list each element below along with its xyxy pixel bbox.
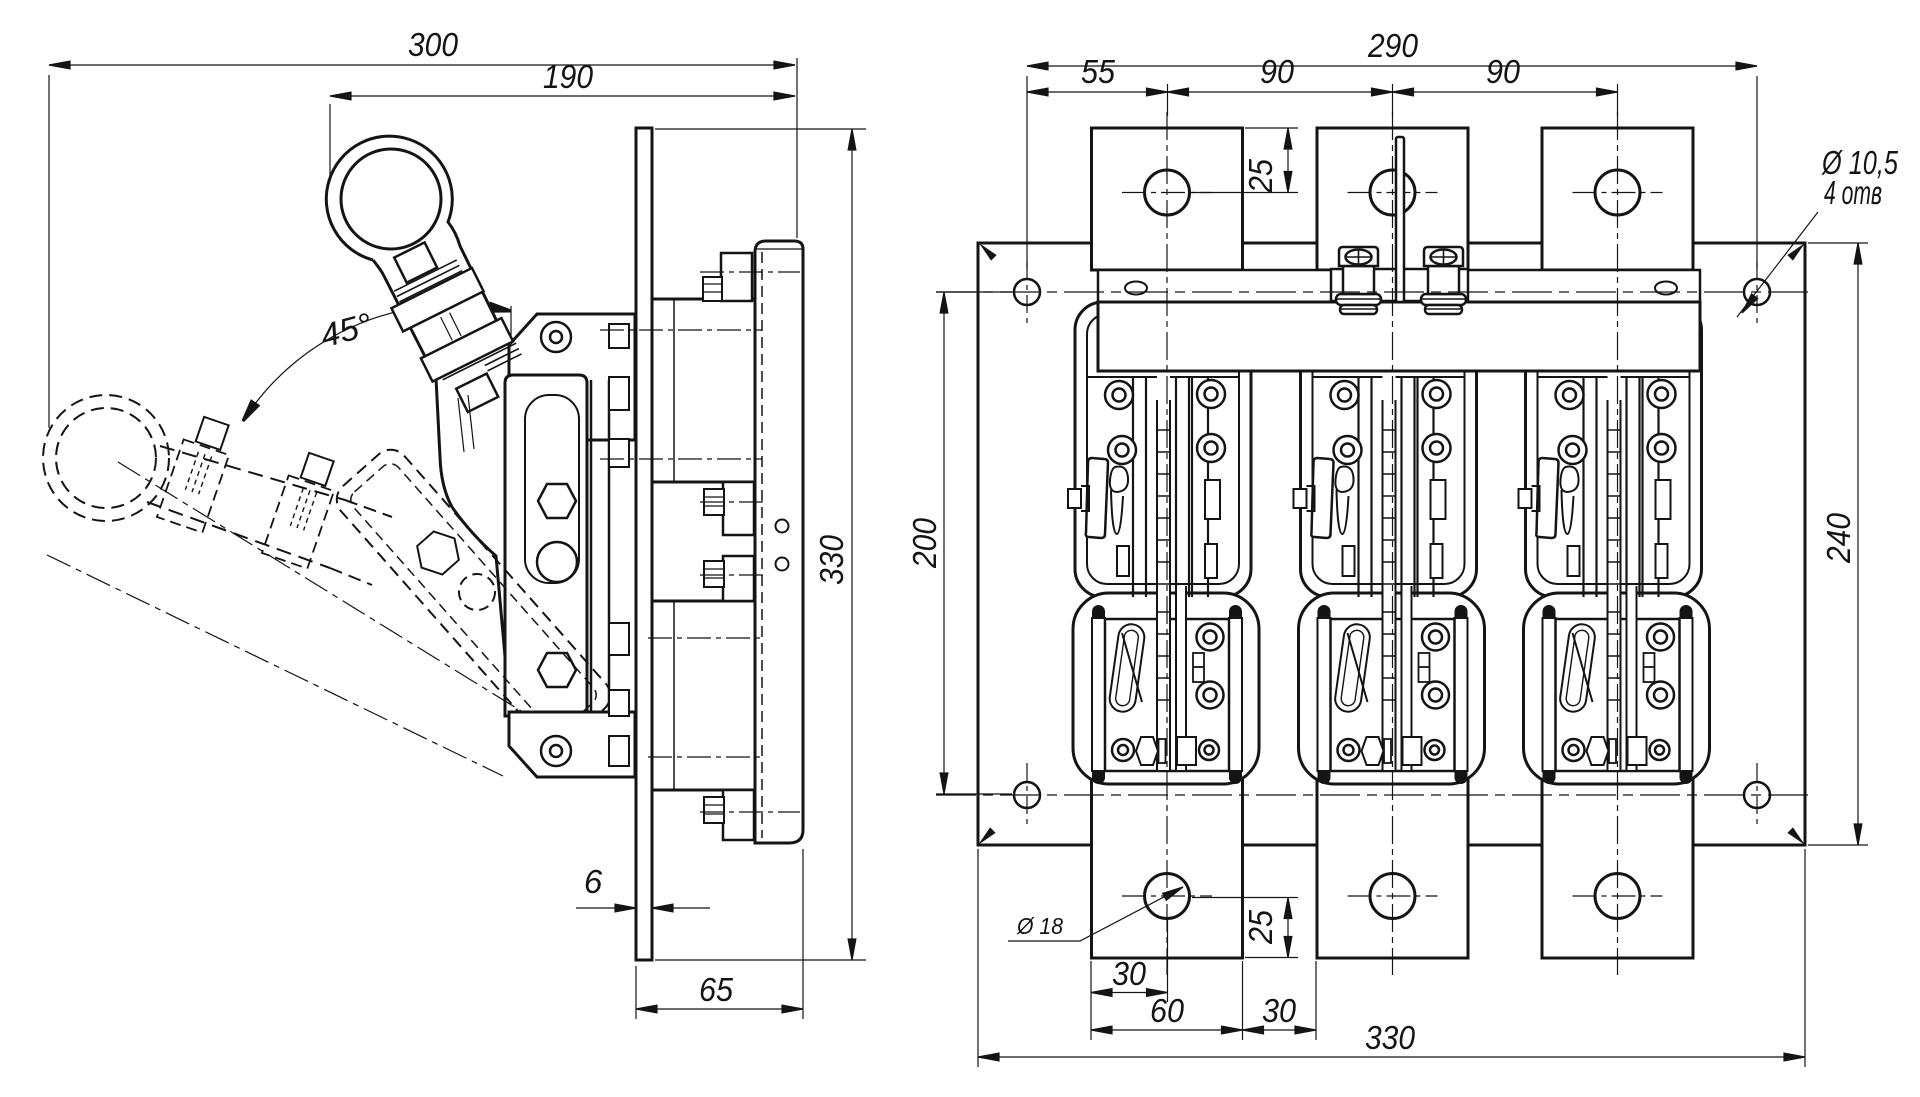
svg-text:240: 240 xyxy=(1820,512,1857,563)
svg-text:330: 330 xyxy=(1365,1019,1416,1056)
svg-text:90: 90 xyxy=(1486,53,1521,90)
svg-text:30: 30 xyxy=(1262,992,1297,1029)
svg-text:90: 90 xyxy=(1260,53,1295,90)
svg-text:65: 65 xyxy=(699,971,734,1008)
svg-text:4 отв: 4 отв xyxy=(1824,174,1882,211)
svg-text:55: 55 xyxy=(1081,53,1116,90)
svg-text:60: 60 xyxy=(1150,992,1185,1029)
svg-text:300: 300 xyxy=(408,26,459,63)
svg-text:190: 190 xyxy=(543,58,594,95)
svg-text:330: 330 xyxy=(813,534,850,585)
svg-text:6: 6 xyxy=(584,863,603,900)
svg-text:25: 25 xyxy=(1242,158,1279,194)
svg-text:Ø 18: Ø 18 xyxy=(1016,913,1063,939)
svg-text:290: 290 xyxy=(1367,27,1418,64)
svg-text:200: 200 xyxy=(906,517,943,568)
svg-text:25: 25 xyxy=(1242,909,1279,945)
svg-text:30: 30 xyxy=(1112,955,1147,992)
